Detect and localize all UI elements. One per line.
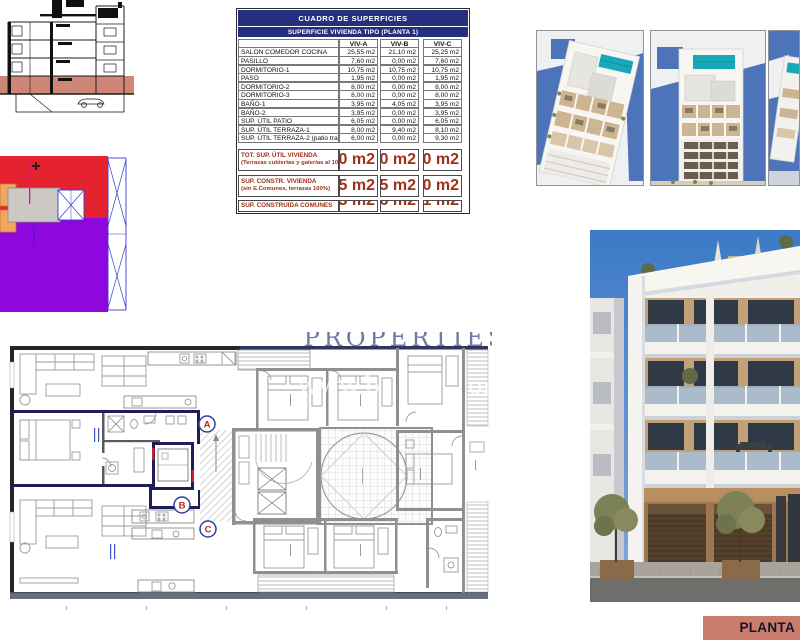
main-building [628,235,800,562]
plan-sheet: CUADRO DE SUPERFICIES SUPERFICIE VIVIEND… [0,0,800,640]
table-subtitle: SUPERFICIE VIVIENDA TIPO (PLANTA 1) [238,27,468,37]
dimension-ticks [66,606,447,610]
road [590,578,800,602]
building-section-drawing [0,0,136,120]
floor-plan: PROPERTIES www.b om A B C [6,332,492,612]
aerial-render-1 [536,30,644,186]
aerial-render-2 [650,30,766,186]
aerial-render-3-image [769,31,799,185]
corridor-hatch [200,430,232,522]
planta-banner: PLANTA [703,616,800,640]
facade-render [590,230,800,602]
surface-rows: SALON COMEDOR COCINA25,55 m221,10 m225,2… [238,47,468,142]
aerial-render-1-image [537,31,643,185]
marker-c: C [200,521,216,537]
aerial-render-2-image [651,31,765,185]
aerial-building-2 [679,49,743,183]
key-stair-strip [108,158,126,310]
watermark-properties: PROPERTIES [304,332,492,352]
key-plan [0,148,128,316]
section-structure [0,6,134,112]
aerial-render-3 [768,30,800,186]
marker-b: B [174,497,190,513]
table-title: CUADRO DE SUPERFICIES [238,10,468,26]
watermark-url-left: www.b [298,372,380,400]
summary-row: SUP. CONSTR. VIVIENDA(sin E.Comunes, ter… [238,175,468,197]
summary-row: SUP. CONSTRUIDA COMUNES16,33 m28,66 m216… [238,200,468,212]
svg-text:A: A [204,419,211,430]
summary-row: TOT. SUP. ÚTIL VIVIENDA(Terrazas cubiert… [238,149,468,171]
watermark-url-right: om [468,372,492,400]
surface-table: CUADRO DE SUPERFICIES SUPERFICIE VIVIEND… [236,8,470,214]
svg-text:B: B [179,500,186,511]
table-row: SUP. ÚTIL TERRAZA-2 (patio trasero)6,00 … [238,133,468,142]
summary-rows: TOT. SUP. ÚTIL VIVIENDA(Terrazas cubiert… [238,149,468,212]
key-core [8,188,60,222]
marker-a: A [199,416,215,432]
svg-text:C: C [205,524,212,535]
key-elevator [58,190,84,220]
